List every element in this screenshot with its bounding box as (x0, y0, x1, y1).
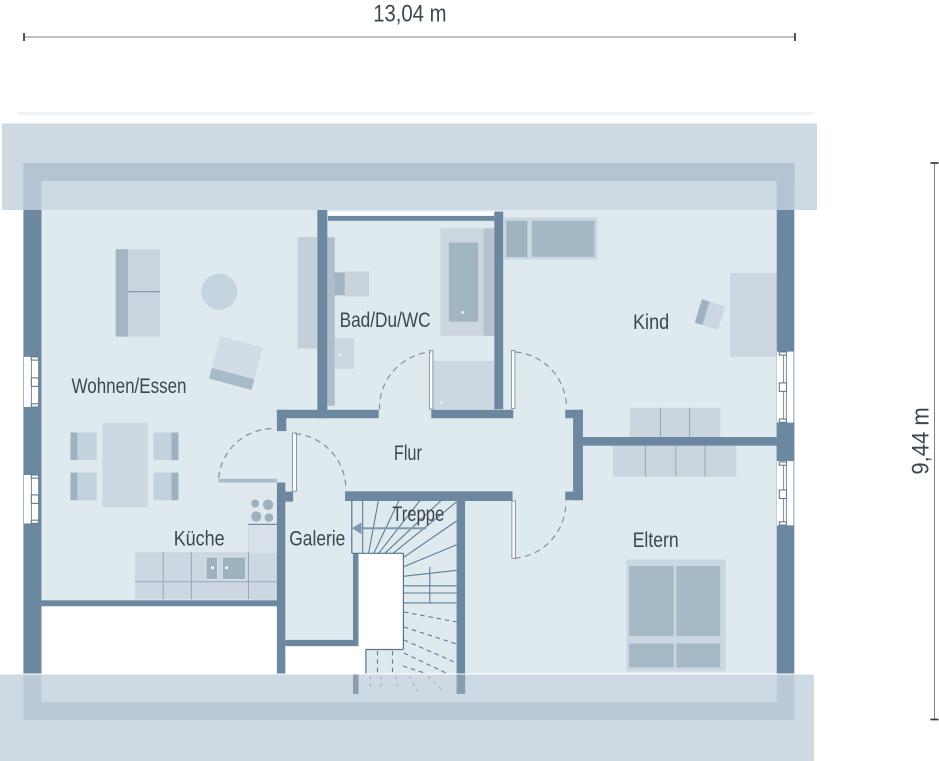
svg-text:Flur: Flur (394, 441, 422, 465)
svg-text:Galerie: Galerie (289, 527, 345, 551)
svg-text:Kind: Kind (633, 310, 669, 334)
svg-text:Eltern: Eltern (633, 528, 679, 552)
svg-text:13,04 m: 13,04 m (373, 0, 446, 27)
svg-text:Küche: Küche (174, 527, 225, 551)
svg-text:9,44 m: 9,44 m (908, 407, 935, 474)
svg-text:Treppe: Treppe (392, 502, 444, 526)
svg-text:Wohnen/Essen: Wohnen/Essen (72, 374, 187, 398)
svg-text:Bad/Du/WC: Bad/Du/WC (340, 308, 431, 332)
